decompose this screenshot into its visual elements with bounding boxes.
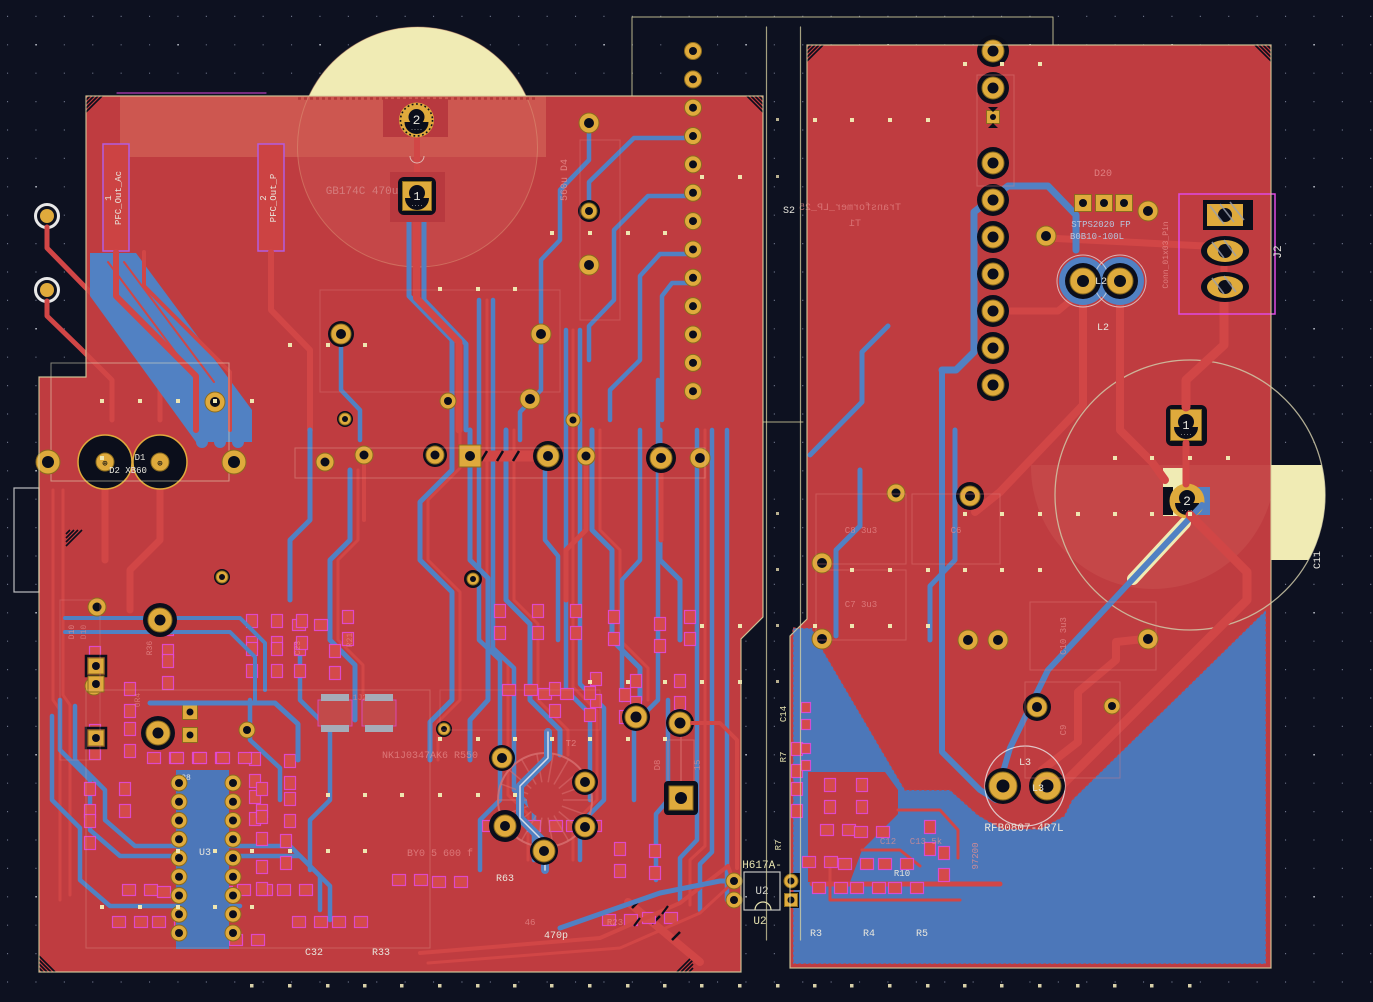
svg-text:1J2: 1J2 bbox=[353, 694, 368, 703]
svg-text:L3: L3 bbox=[1032, 784, 1044, 795]
svg-text:GB174C 470u: GB174C 470u bbox=[326, 186, 399, 198]
svg-text:C9: C9 bbox=[1059, 725, 1069, 736]
svg-text:2: 2 bbox=[259, 195, 269, 200]
svg-text:J2: J2 bbox=[1273, 245, 1285, 258]
svg-text:R10: R10 bbox=[894, 869, 910, 879]
svg-text:0R4: 0R4 bbox=[134, 693, 143, 708]
svg-text:D10: D10 bbox=[68, 625, 77, 640]
svg-text:C14: C14 bbox=[779, 706, 789, 722]
svg-text:560u D4: 560u D4 bbox=[560, 159, 571, 201]
svg-text:PFC_Out_P: PFC_Out_P bbox=[269, 174, 279, 223]
svg-text:T1: T1 bbox=[849, 219, 861, 230]
svg-text:R4: R4 bbox=[863, 929, 875, 940]
svg-text:STPS2020 FP: STPS2020 FP bbox=[1071, 220, 1130, 230]
svg-text:R21: R21 bbox=[346, 633, 355, 648]
svg-text:C6: C6 bbox=[951, 526, 962, 536]
svg-text:15: 15 bbox=[693, 760, 703, 771]
svg-text:L2: L2 bbox=[1095, 277, 1107, 288]
svg-text:46: 46 bbox=[525, 918, 536, 928]
svg-text:Transformer_LP_25: Transformer_LP_25 bbox=[799, 202, 901, 214]
svg-text:C8 3u3: C8 3u3 bbox=[845, 526, 877, 536]
svg-text:2: 2 bbox=[1183, 494, 1191, 509]
svg-text:U2: U2 bbox=[753, 916, 766, 928]
svg-text:⊕: ⊕ bbox=[102, 459, 107, 469]
svg-text:D2 XB60: D2 XB60 bbox=[109, 466, 147, 476]
svg-text:D8: D8 bbox=[653, 760, 663, 771]
svg-text:C7 3u3: C7 3u3 bbox=[845, 600, 877, 610]
svg-text:Conn_01x03_Pin: Conn_01x03_Pin bbox=[1162, 221, 1171, 288]
svg-text:BY0 5 600 f: BY0 5 600 f bbox=[407, 848, 473, 860]
svg-text:1: 1 bbox=[413, 190, 420, 204]
svg-text:H617A-: H617A- bbox=[742, 860, 782, 872]
svg-text:R33: R33 bbox=[372, 948, 390, 959]
svg-text:D10: D10 bbox=[80, 625, 89, 640]
svg-text:C23: C23 bbox=[294, 641, 303, 656]
svg-text:····: ···· bbox=[1180, 432, 1192, 438]
svg-text:PFC_Out_Ac: PFC_Out_Ac bbox=[114, 171, 124, 225]
svg-text:C32: C32 bbox=[305, 948, 323, 959]
svg-text:97200: 97200 bbox=[971, 842, 981, 869]
svg-text:····: ···· bbox=[411, 203, 423, 209]
svg-text:L2: L2 bbox=[1097, 323, 1109, 334]
svg-text:C12: C12 bbox=[880, 837, 896, 847]
svg-text:470p: 470p bbox=[544, 931, 568, 942]
svg-text:C11: C11 bbox=[1313, 551, 1324, 569]
svg-text:RFB0807-4R7L: RFB0807-4R7L bbox=[984, 823, 1063, 835]
svg-text:2: 2 bbox=[413, 113, 421, 128]
svg-text:U3: U3 bbox=[199, 848, 211, 859]
svg-text:1: 1 bbox=[104, 195, 114, 200]
svg-text:R7: R7 bbox=[779, 752, 789, 763]
svg-text:R5: R5 bbox=[916, 929, 928, 940]
svg-text:1: 1 bbox=[1182, 419, 1189, 433]
svg-text:R7: R7 bbox=[774, 840, 784, 851]
svg-text:C10 3u3: C10 3u3 bbox=[1059, 617, 1069, 655]
svg-text:R23: R23 bbox=[607, 918, 623, 928]
svg-text:S2: S2 bbox=[783, 206, 795, 217]
svg-text:R36: R36 bbox=[146, 641, 155, 656]
svg-text:NK1J0347AK6 R550: NK1J0347AK6 R550 bbox=[382, 751, 478, 762]
svg-text:B0B10-100L: B0B10-100L bbox=[1070, 232, 1124, 242]
svg-text:R3: R3 bbox=[810, 929, 822, 940]
svg-text:R63: R63 bbox=[496, 874, 514, 885]
svg-text:C13 5k: C13 5k bbox=[910, 837, 942, 847]
svg-text:D1: D1 bbox=[135, 453, 146, 463]
svg-text:····: ···· bbox=[410, 127, 422, 133]
svg-text:⊕: ⊕ bbox=[157, 459, 162, 469]
svg-text:T2: T2 bbox=[566, 739, 577, 749]
svg-text:D20: D20 bbox=[1094, 169, 1112, 180]
